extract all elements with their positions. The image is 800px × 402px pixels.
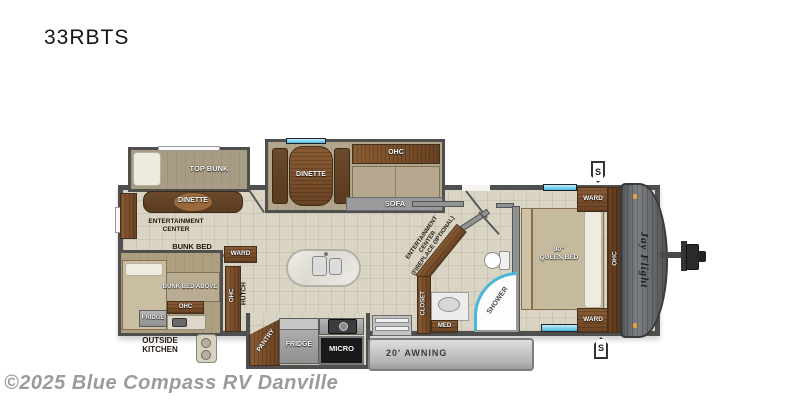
island-faucet-icon bbox=[324, 252, 328, 256]
fridge-main-top bbox=[280, 319, 318, 330]
dinette-label: DINETTE bbox=[288, 171, 334, 179]
ohc-sofa-label: OHC bbox=[352, 149, 440, 157]
awning-label: 20' AWNING bbox=[386, 349, 476, 359]
queen-bed-line1: 80" bbox=[536, 246, 582, 254]
clearance-light-top bbox=[633, 194, 637, 199]
s-badge-top: S bbox=[591, 161, 605, 183]
floorplan-page: 33RBTS TOP BUNK DINETTE ENTERTAINMENT CE… bbox=[0, 0, 800, 402]
ward-bunk-label: WARD bbox=[224, 250, 257, 257]
burner-top-icon bbox=[201, 338, 211, 348]
burner-bottom-icon bbox=[201, 350, 211, 360]
toilet-bowl bbox=[484, 252, 501, 269]
bedroom-window-bottom bbox=[541, 324, 578, 332]
hutch-label: HUTCH bbox=[240, 277, 247, 311]
ohc-bed-label: OHC bbox=[611, 246, 618, 272]
entertainment-center-line1: ENTERTAINMENT bbox=[141, 218, 211, 226]
entry-step-bottom bbox=[375, 326, 409, 331]
top-bunk-pillow bbox=[133, 152, 161, 186]
living-slideout-window bbox=[286, 138, 326, 144]
top-bunk-label: TOP BUNK bbox=[170, 165, 248, 173]
queen-bed-label: 80" QUEEN BED bbox=[536, 246, 582, 262]
s-badge-bottom-letter: S bbox=[598, 343, 604, 353]
ward-front-top-label: WARD bbox=[577, 195, 609, 202]
bunk-bed-above-label: BUNK BED ABOVE bbox=[158, 284, 222, 291]
island-sink-right bbox=[329, 258, 342, 275]
entry-step-top bbox=[375, 318, 409, 323]
dinette-bench-left bbox=[272, 148, 288, 204]
s-badge-bottom: S bbox=[594, 337, 608, 359]
entertainment-center-cabinet bbox=[120, 193, 137, 239]
jay-flight-logo: Jay Flight bbox=[634, 225, 650, 295]
queen-bed-pillow bbox=[584, 210, 602, 308]
entertainment-center-line2: CENTER bbox=[141, 226, 211, 234]
sofa-cushion-divider bbox=[395, 167, 396, 197]
bath-wall-top bbox=[412, 201, 464, 207]
med-label: MED bbox=[431, 323, 458, 330]
dinette-bench-right bbox=[334, 148, 350, 204]
island-sink-left bbox=[312, 256, 327, 276]
bunk-bed-pillow bbox=[125, 263, 163, 276]
hitch-coupler bbox=[697, 251, 706, 262]
bunk-slideout-window bbox=[158, 146, 220, 151]
outside-kitchen-label: OUTSIDE KITCHEN bbox=[124, 336, 196, 354]
ohc-bunk-label: OHC bbox=[167, 304, 204, 311]
clearance-light-bottom bbox=[633, 323, 637, 328]
microwave-label: MICRO bbox=[319, 345, 364, 353]
page-title: 33RBTS bbox=[44, 26, 129, 50]
queen-bed-line2: QUEEN BED bbox=[536, 254, 582, 262]
fridge-bunk-label: FRIDGE bbox=[139, 315, 167, 322]
entertainment-center-label: ENTERTAINMENT CENTER bbox=[141, 218, 211, 233]
bed-foot-bench bbox=[521, 208, 532, 310]
sofa bbox=[352, 166, 440, 198]
closet-label: CLOSET bbox=[421, 283, 428, 323]
ward-front-bottom-label: WARD bbox=[577, 316, 609, 323]
watermark: ©2025 Blue Compass RV Danville bbox=[4, 372, 338, 395]
s-badge-top-letter: S bbox=[595, 167, 601, 177]
vanity-sink-icon bbox=[438, 297, 460, 312]
outside-kitchen-line1: OUTSIDE bbox=[124, 336, 196, 345]
fridge-main-label: FRIDGE bbox=[279, 341, 319, 349]
bedroom-window-top bbox=[543, 184, 577, 191]
cooktop-burner-icon bbox=[339, 322, 348, 331]
bunk-dinette-label: DINETTE bbox=[167, 197, 219, 205]
outside-kitchen-sink bbox=[172, 318, 187, 327]
outside-kitchen-line2: KITCHEN bbox=[124, 345, 196, 354]
hutch-ohc-label: OHC bbox=[230, 282, 237, 308]
